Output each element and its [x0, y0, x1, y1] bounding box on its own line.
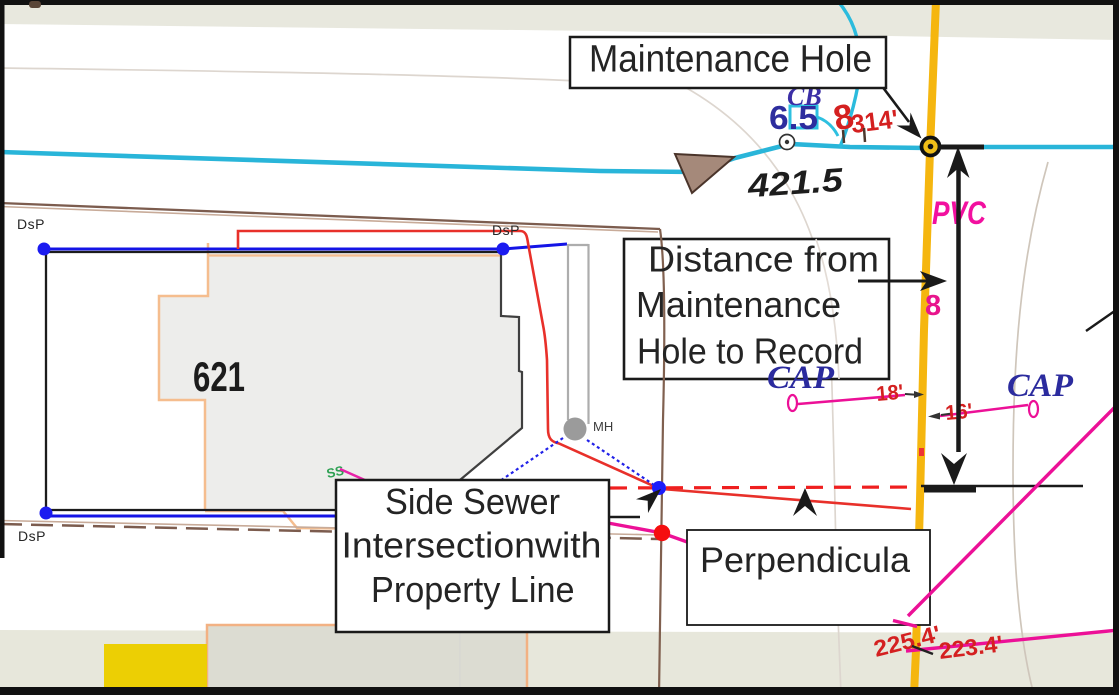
- svg-text:421.5: 421.5: [746, 161, 845, 205]
- svg-text:DsP: DsP: [17, 216, 45, 232]
- svg-text:DsP: DsP: [18, 528, 46, 544]
- svg-text:MH: MH: [593, 419, 613, 434]
- svg-text:314': 314': [849, 104, 899, 140]
- svg-text:CAP: CAP: [767, 360, 835, 396]
- svg-text:DsP: DsP: [492, 222, 520, 238]
- svg-text:8: 8: [925, 290, 941, 322]
- svg-text:CAP: CAP: [1007, 368, 1074, 404]
- svg-text:CB: CB: [787, 82, 822, 111]
- svg-text:18': 18': [875, 381, 904, 406]
- svg-text:621: 621: [193, 353, 245, 400]
